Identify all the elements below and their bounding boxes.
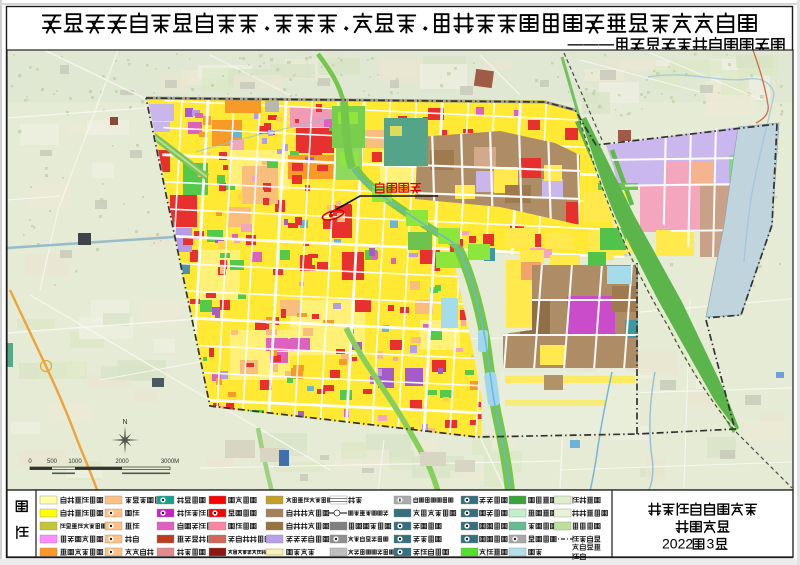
svg-text:500: 500 [47,459,58,465]
svg-text:1000: 1000 [68,459,82,465]
svg-text:N: N [122,419,127,426]
svg-text:3: 3 [707,536,715,552]
svg-text:3000M: 3000M [161,459,179,465]
svg-text:2000: 2000 [115,459,129,465]
svg-text:2022: 2022 [662,536,693,552]
